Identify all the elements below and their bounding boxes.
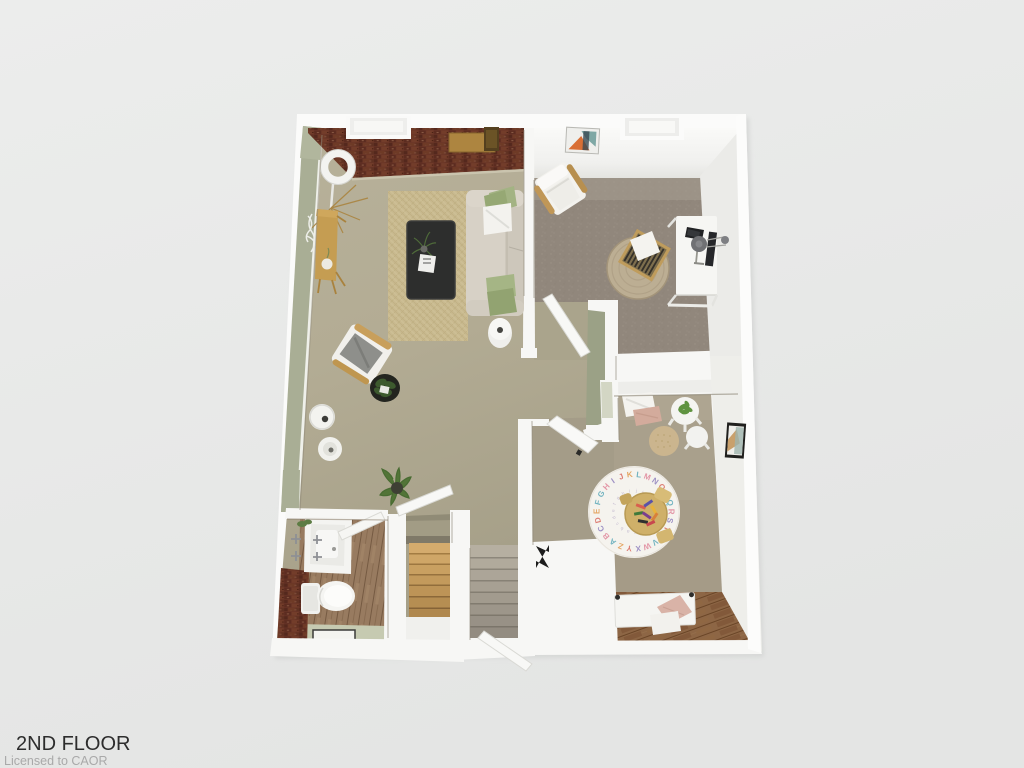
svg-text:E: E [593,508,602,514]
svg-text:R: R [667,509,676,515]
